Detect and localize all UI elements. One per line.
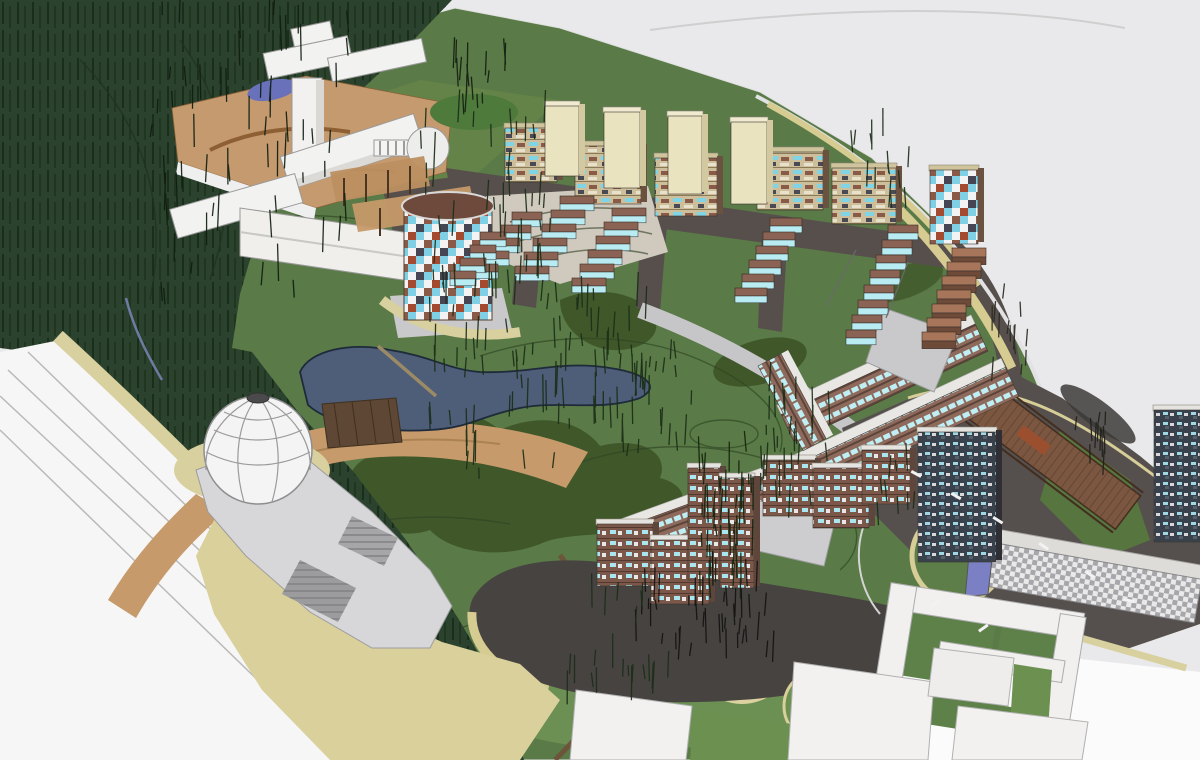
scene-canvas <box>0 0 1200 760</box>
building-block-cream <box>603 107 646 188</box>
masterplan-rendering <box>0 0 1200 760</box>
building-block-win <box>596 519 659 586</box>
building-block-cream <box>544 101 585 176</box>
building-block-mosaic <box>929 165 984 244</box>
building-block-dark <box>917 427 1002 562</box>
building-block-busy <box>831 163 902 224</box>
white-box-3 <box>928 648 1014 706</box>
building-block-dark <box>1153 405 1200 542</box>
building-block-cream <box>667 111 708 194</box>
building-block-cream <box>730 117 773 204</box>
